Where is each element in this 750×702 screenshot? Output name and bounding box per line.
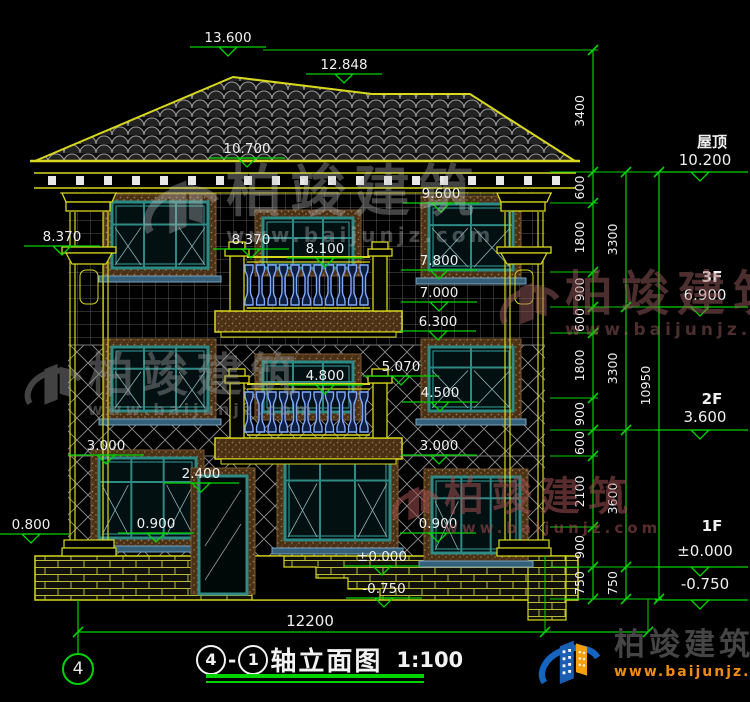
spot-elevation-value: 0.900 bbox=[419, 516, 458, 532]
eave-dentil bbox=[440, 176, 448, 185]
spot-elevation-value: 6.300 bbox=[419, 314, 458, 330]
level-marker: 3F6.900 bbox=[655, 268, 748, 316]
dim-value: 1800 bbox=[572, 350, 587, 382]
spot-elevation-value: 3.000 bbox=[87, 438, 126, 454]
dim-value: 3300 bbox=[605, 353, 620, 385]
axis-ref-dash: - bbox=[228, 648, 236, 672]
eave-dentil bbox=[356, 176, 364, 185]
level-label: 屋顶 bbox=[697, 133, 727, 151]
spot-elevation-value: 4.500 bbox=[421, 385, 460, 401]
brand-logo: 柏竣建筑 www.baijunjz.com bbox=[534, 628, 750, 698]
eave-dentil bbox=[160, 176, 168, 185]
roof bbox=[35, 77, 575, 161]
eave-dentil bbox=[300, 176, 308, 185]
door-frame bbox=[199, 476, 247, 594]
level-label: 3F bbox=[702, 268, 723, 286]
spot-elevation-value: 4.800 bbox=[306, 368, 345, 384]
dim-value: 900 bbox=[572, 535, 587, 559]
entry-door bbox=[191, 468, 255, 594]
brand-name: 柏竣建筑 bbox=[614, 628, 750, 662]
spot-elevation-value: 8.370 bbox=[232, 232, 271, 248]
column-capital bbox=[62, 193, 116, 202]
eave-dentil bbox=[272, 176, 280, 185]
column-capital-band bbox=[501, 202, 545, 211]
eave-dentil bbox=[76, 176, 84, 185]
window-frame bbox=[112, 202, 208, 268]
level-value: 3.600 bbox=[684, 408, 727, 426]
window-sill bbox=[419, 561, 533, 567]
dim-value: 600 bbox=[572, 176, 587, 200]
right-pier-base bbox=[528, 556, 566, 620]
balcony-slab bbox=[215, 438, 402, 459]
title-text: 轴立面图 bbox=[270, 641, 382, 678]
axis-ref-start: 4 bbox=[196, 645, 226, 675]
level-value: 10.200 bbox=[679, 151, 732, 169]
level-marker: -0.750 bbox=[655, 575, 748, 609]
column-bracket bbox=[62, 247, 116, 253]
elevation-triangle bbox=[691, 172, 709, 181]
eave-dentil bbox=[468, 176, 476, 185]
window-frame bbox=[112, 347, 208, 411]
dim-value: 750 bbox=[605, 571, 620, 595]
eave-dentil bbox=[328, 176, 336, 185]
dim-value: 900 bbox=[572, 278, 587, 302]
dim-value: 1800 bbox=[572, 222, 587, 254]
balcony-pedestal bbox=[373, 383, 387, 438]
grid-bubble: 4 bbox=[62, 653, 94, 685]
spot-elevation-value: 8.370 bbox=[43, 229, 82, 245]
balcony-slab-lip bbox=[221, 332, 396, 337]
dim-value: 600 bbox=[572, 431, 587, 455]
column-base-cap bbox=[499, 540, 549, 548]
spot-elevation-value: 8.100 bbox=[306, 241, 345, 257]
column-capital-band bbox=[66, 202, 110, 211]
cad-canvas: 13.60012.84810.7009.6008.3708.3708.1007.… bbox=[0, 0, 750, 702]
pedestal-cap bbox=[368, 376, 392, 383]
balcony-pedestal bbox=[230, 256, 244, 311]
eave-dentil bbox=[104, 176, 112, 185]
pedestal-cap-top bbox=[372, 242, 388, 249]
spot-elevation-value: 5.070 bbox=[382, 359, 421, 375]
window-sill bbox=[99, 419, 221, 425]
level-value: ±0.000 bbox=[677, 542, 733, 560]
elevation-triangle bbox=[691, 307, 709, 316]
eave-dentil bbox=[48, 176, 56, 185]
window-sill bbox=[99, 276, 221, 282]
dim-value: 10950 bbox=[638, 366, 653, 406]
window bbox=[99, 194, 221, 282]
spot-elevation-value: 3.000 bbox=[420, 438, 459, 454]
column-base-cap bbox=[64, 540, 114, 548]
column-base bbox=[62, 548, 116, 556]
level-label: 2F bbox=[702, 390, 723, 408]
spot-elevation-value: 10.700 bbox=[223, 141, 270, 157]
pedestal-cap-top bbox=[229, 369, 245, 376]
spot-elevation-value: 0.900 bbox=[137, 516, 176, 532]
elevation-triangle bbox=[219, 47, 237, 56]
spot-elevation-value: 13.600 bbox=[204, 30, 251, 46]
spot-elevation-value: 9.600 bbox=[422, 186, 461, 202]
pedestal-cap bbox=[368, 249, 392, 256]
dim-value: 600 bbox=[572, 308, 587, 332]
balcony-slab-lip bbox=[221, 459, 396, 464]
column-bracket-flare bbox=[501, 253, 547, 264]
level-label: 1F bbox=[702, 517, 723, 535]
brand-logo-icon bbox=[534, 628, 608, 698]
spot-elevation-value: -0.750 bbox=[362, 581, 406, 597]
eave-dentil bbox=[496, 176, 504, 185]
title-scale: 1:100 bbox=[396, 648, 463, 672]
dim-value: 3300 bbox=[605, 224, 620, 256]
elevation-triangle bbox=[335, 74, 353, 83]
eave-dentil bbox=[524, 176, 532, 185]
spot-elevation: 12.848 bbox=[306, 57, 382, 83]
spot-elevation-value: 7.800 bbox=[420, 253, 459, 269]
dim-value: 900 bbox=[572, 402, 587, 426]
column-capital bbox=[497, 193, 551, 202]
level-marker: 1F±0.000 bbox=[655, 517, 748, 576]
eave-dentil bbox=[244, 176, 252, 185]
pedestal-cap bbox=[225, 376, 249, 383]
balcony-pedestal bbox=[230, 383, 244, 438]
dim-value: 3400 bbox=[572, 95, 587, 127]
level-marker: 2F3.600 bbox=[655, 390, 748, 439]
eave-dentil bbox=[412, 176, 420, 185]
dim-value: 3600 bbox=[605, 483, 620, 515]
dim-value: 2100 bbox=[572, 476, 587, 508]
drawing-title: 4 - 1 轴立面图 1:100 bbox=[196, 641, 463, 678]
spot-elevation: 0.800 bbox=[0, 517, 69, 543]
spot-elevation-value: 0.800 bbox=[12, 517, 51, 533]
spot-elevation: 13.600 bbox=[190, 30, 266, 56]
dim-value: 12200 bbox=[286, 612, 334, 630]
elevation-triangle bbox=[691, 600, 709, 609]
elevation-triangle bbox=[691, 430, 709, 439]
spot-elevation-value: 2.400 bbox=[182, 466, 221, 482]
building-facade bbox=[30, 77, 580, 620]
window bbox=[99, 339, 221, 425]
dim-value: 750 bbox=[572, 571, 587, 595]
level-value: -0.750 bbox=[681, 575, 729, 593]
spot-elevation-value: 12.848 bbox=[320, 57, 367, 73]
column-base bbox=[497, 548, 551, 556]
eave-dentil bbox=[552, 176, 560, 185]
elevation-triangle bbox=[22, 534, 40, 543]
column-bracket bbox=[497, 247, 551, 253]
spot-elevation-value: ±0.000 bbox=[357, 549, 407, 565]
spot-elevation-value: 7.000 bbox=[420, 285, 459, 301]
eave-dentil bbox=[188, 176, 196, 185]
elevation-drawing: 13.60012.84810.7009.6008.3708.3708.1007.… bbox=[0, 0, 750, 702]
window-frame bbox=[285, 455, 390, 540]
title-underline-thin bbox=[206, 681, 424, 683]
eave-dentil bbox=[216, 176, 224, 185]
balcony-slab bbox=[215, 311, 402, 332]
eave-dentil bbox=[132, 176, 140, 185]
eave-dentil bbox=[384, 176, 392, 185]
column-bracket-flare bbox=[66, 253, 112, 264]
balcony-pedestal bbox=[373, 256, 387, 311]
title-underline-thick bbox=[206, 674, 424, 678]
level-marker: 屋顶10.200 bbox=[655, 133, 748, 181]
level-value: 6.900 bbox=[684, 286, 727, 304]
axis-ref-end: 1 bbox=[238, 645, 268, 675]
brand-url: www.baijunjz.com bbox=[614, 664, 750, 680]
